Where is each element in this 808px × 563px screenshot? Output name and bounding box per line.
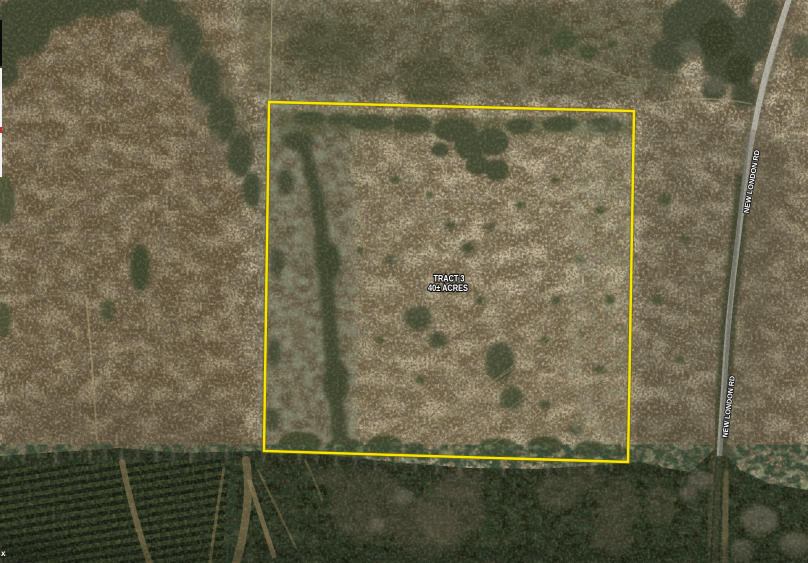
svg-text:x: x [1,549,6,558]
svg-text:40± ACRES: 40± ACRES [428,283,468,294]
